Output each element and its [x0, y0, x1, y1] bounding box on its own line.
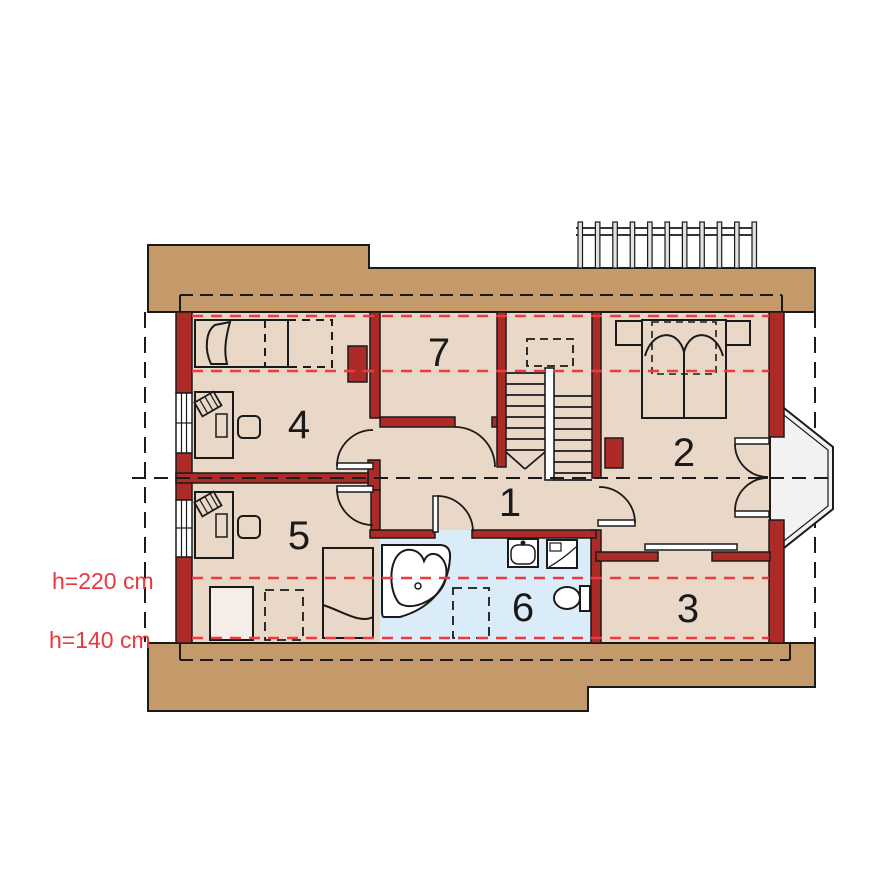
sliding-door-icon — [645, 544, 737, 550]
window-icon — [176, 500, 192, 557]
label-height-220: h=220 cm — [52, 568, 154, 594]
label-height-140: h=140 cm — [49, 627, 151, 653]
stair-stringer — [545, 368, 554, 480]
chair-icon — [238, 416, 260, 438]
floor-plan-page: 1 2 3 4 5 6 7 h=220 cm h=140 cm — [0, 0, 888, 892]
wardrobe-icon — [210, 587, 253, 640]
wall-right — [769, 520, 784, 643]
wall-left — [176, 557, 192, 643]
wall-bath-room3 — [591, 530, 601, 643]
room-label-3: 3 — [677, 587, 699, 631]
roof-band-top — [148, 245, 815, 312]
wall-room5-hall — [371, 490, 380, 530]
wall-left — [176, 312, 192, 393]
chair-icon — [238, 516, 260, 538]
wall-stairwell-east — [592, 312, 601, 478]
sink-icon — [508, 539, 538, 567]
window-icon — [176, 393, 192, 453]
floor-plan-drawing: 1 2 3 4 5 6 7 h=220 cm h=140 cm — [0, 0, 888, 892]
room-label-2: 2 — [673, 431, 695, 475]
nightstand-icon — [724, 321, 750, 345]
balcony-railing-icon — [576, 222, 757, 268]
wall-room3-north — [712, 552, 770, 561]
washing-machine-icon — [547, 540, 577, 568]
room-label-5: 5 — [288, 514, 310, 558]
toilet-icon — [554, 586, 590, 611]
chimney-icon — [348, 346, 367, 382]
single-bed-icon — [323, 548, 373, 638]
wall-right — [769, 312, 784, 437]
room-label-1: 1 — [499, 481, 521, 525]
chimney-icon — [605, 438, 623, 468]
room-label-7: 7 — [428, 331, 450, 375]
wall-stairwell-west — [497, 312, 506, 467]
height-annotations: h=220 cm h=140 cm — [49, 568, 154, 653]
room-label-4: 4 — [288, 403, 310, 447]
room-label-6: 6 — [512, 586, 534, 630]
wall-room7-hall — [380, 417, 455, 427]
wall-room4-room7 — [370, 312, 380, 418]
wall-bath-north — [370, 530, 435, 538]
wall-bath-north — [472, 530, 596, 538]
nightstand-icon — [616, 321, 642, 345]
roof-band-bottom — [148, 643, 815, 711]
wall-room3-north — [596, 552, 658, 561]
double-bed-icon — [642, 320, 726, 418]
